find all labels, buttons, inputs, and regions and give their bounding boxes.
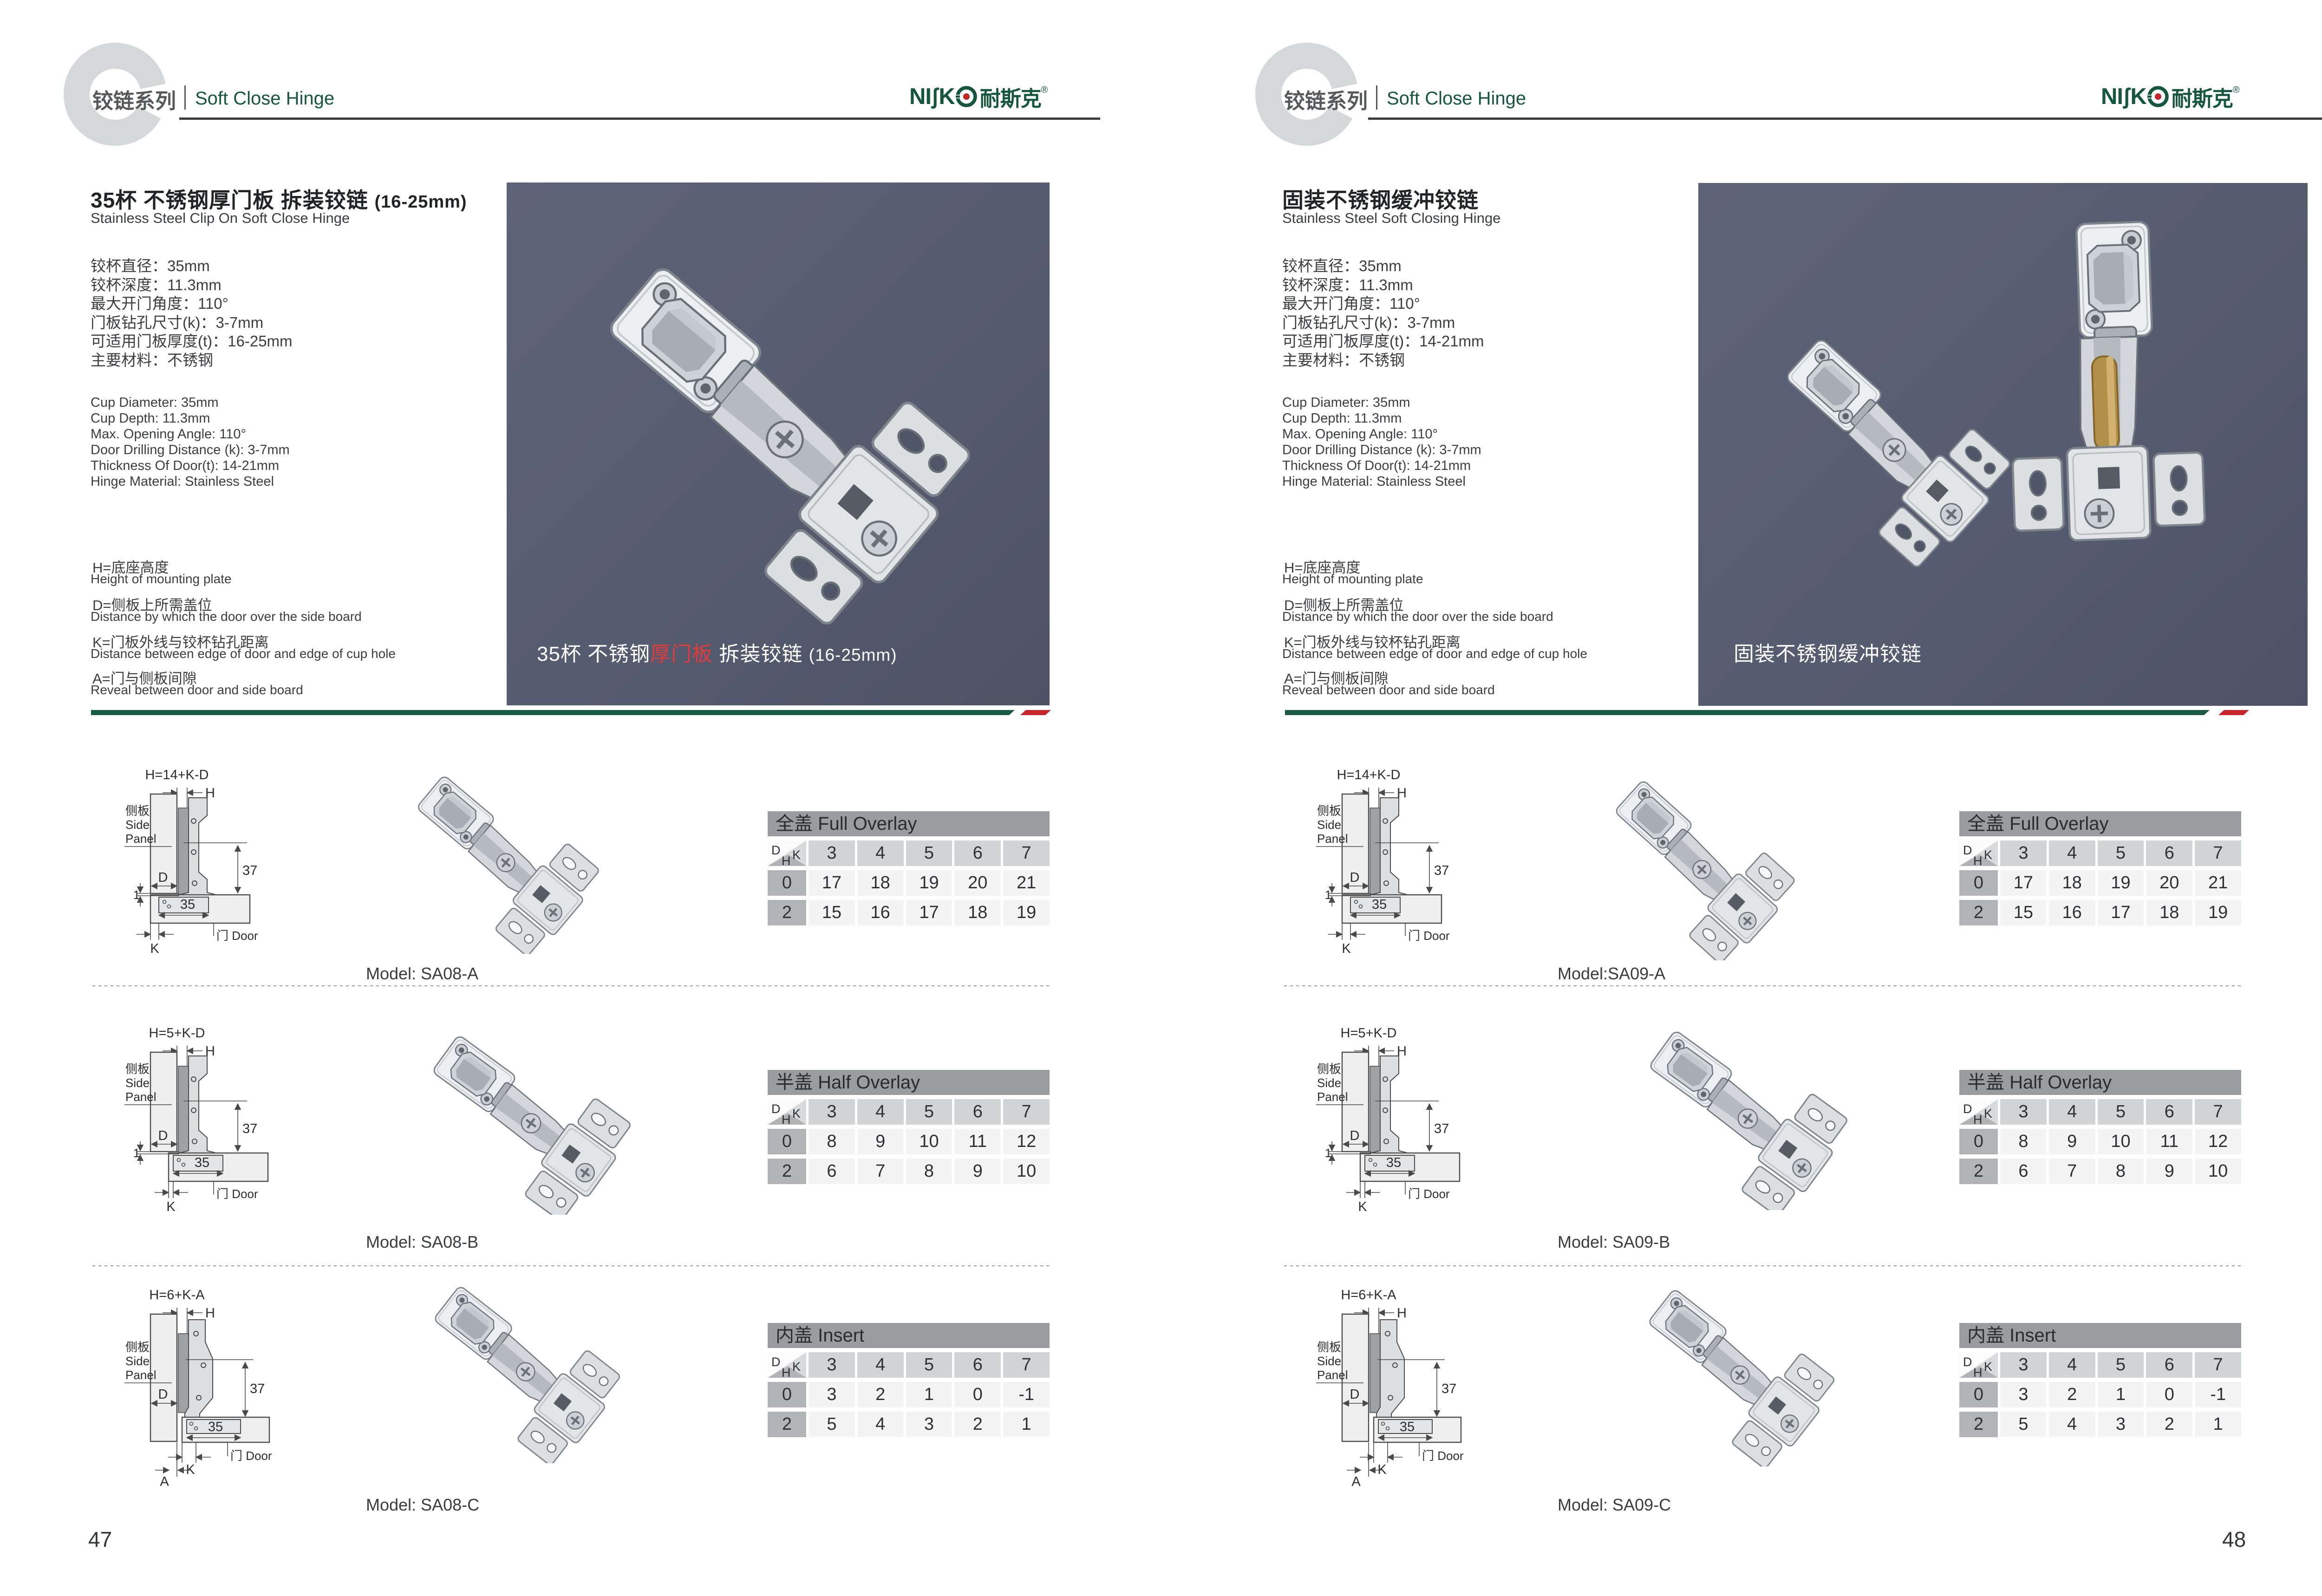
- svg-text:37: 37: [242, 863, 257, 878]
- svg-text:门 Door: 门 Door: [216, 929, 258, 943]
- svg-text:Panel: Panel: [1317, 1090, 1348, 1104]
- svg-text:门 Door: 门 Door: [1408, 1187, 1450, 1201]
- svg-text:H: H: [782, 854, 791, 866]
- svg-text:K: K: [186, 1462, 195, 1477]
- svg-text:35: 35: [1400, 1420, 1415, 1434]
- svg-text:侧板: 侧板: [1317, 1340, 1341, 1354]
- svg-text:H: H: [1973, 1366, 1983, 1378]
- svg-text:37: 37: [1441, 1381, 1456, 1396]
- svg-text:K: K: [1358, 1199, 1367, 1214]
- svg-text:K: K: [792, 848, 801, 862]
- svg-text:35: 35: [1386, 1155, 1401, 1170]
- svg-text:侧板: 侧板: [125, 804, 150, 818]
- svg-text:H=6+K-A: H=6+K-A: [149, 1288, 205, 1303]
- svg-text:门 Door: 门 Door: [1422, 1449, 1464, 1463]
- svg-text:H=14+K-D: H=14+K-D: [1337, 768, 1400, 782]
- svg-text:Side: Side: [1317, 1076, 1341, 1090]
- svg-text:D: D: [1350, 1387, 1360, 1402]
- svg-text:H=6+K-A: H=6+K-A: [1341, 1288, 1396, 1303]
- svg-text:侧板: 侧板: [125, 1062, 150, 1076]
- svg-text:K: K: [1984, 1107, 1992, 1120]
- svg-text:H: H: [782, 1366, 791, 1378]
- svg-text:D: D: [771, 1355, 781, 1369]
- svg-text:门 Door: 门 Door: [216, 1187, 258, 1201]
- svg-text:Side: Side: [125, 1354, 150, 1368]
- svg-text:H: H: [1397, 1306, 1407, 1321]
- svg-text:Panel: Panel: [1317, 1368, 1348, 1382]
- svg-text:1: 1: [133, 1146, 140, 1160]
- svg-text:K: K: [1984, 1360, 1992, 1374]
- svg-text:Panel: Panel: [125, 832, 157, 846]
- svg-text:D: D: [771, 1102, 781, 1116]
- svg-text:侧板: 侧板: [125, 1340, 150, 1354]
- svg-text:1: 1: [1325, 1146, 1331, 1160]
- svg-text:D: D: [158, 870, 168, 885]
- svg-text:D: D: [1963, 1355, 1972, 1369]
- svg-text:D: D: [1350, 1128, 1360, 1143]
- svg-text:1: 1: [133, 888, 140, 902]
- svg-text:H: H: [1973, 1113, 1983, 1125]
- svg-text:D: D: [1963, 1102, 1972, 1116]
- svg-text:门 Door: 门 Door: [1408, 929, 1450, 943]
- svg-text:K: K: [792, 1107, 801, 1120]
- svg-text:H=14+K-D: H=14+K-D: [145, 768, 209, 782]
- svg-text:K: K: [1342, 941, 1351, 956]
- svg-text:35: 35: [195, 1155, 209, 1170]
- svg-text:H: H: [1973, 854, 1983, 866]
- svg-text:Panel: Panel: [125, 1090, 157, 1104]
- svg-text:Side: Side: [125, 818, 150, 832]
- svg-text:D: D: [158, 1128, 168, 1143]
- svg-text:D: D: [771, 843, 781, 857]
- svg-text:Side: Side: [1317, 1354, 1341, 1368]
- svg-text:K: K: [1377, 1462, 1387, 1477]
- svg-text:H: H: [782, 1113, 791, 1125]
- svg-text:A: A: [1351, 1474, 1361, 1488]
- svg-text:1: 1: [1325, 888, 1331, 902]
- svg-text:K: K: [1984, 848, 1992, 862]
- svg-text:侧板: 侧板: [1317, 804, 1341, 818]
- svg-text:Panel: Panel: [1317, 832, 1348, 846]
- svg-text:K: K: [166, 1199, 176, 1214]
- svg-text:D: D: [1350, 870, 1360, 885]
- svg-text:37: 37: [1434, 863, 1449, 878]
- svg-text:K: K: [150, 941, 159, 956]
- svg-text:D: D: [1963, 843, 1972, 857]
- svg-text:Panel: Panel: [125, 1368, 157, 1382]
- svg-text:H: H: [205, 1306, 215, 1321]
- svg-text:K: K: [792, 1360, 801, 1374]
- svg-text:门 Door: 门 Door: [230, 1449, 272, 1463]
- svg-text:37: 37: [250, 1381, 265, 1396]
- svg-text:侧板: 侧板: [1317, 1062, 1341, 1076]
- svg-text:H=5+K-D: H=5+K-D: [149, 1026, 205, 1041]
- svg-text:A: A: [160, 1474, 169, 1488]
- svg-text:35: 35: [208, 1420, 223, 1434]
- svg-text:35: 35: [1372, 897, 1387, 912]
- svg-text:37: 37: [1434, 1121, 1449, 1136]
- svg-text:Side: Side: [125, 1076, 150, 1090]
- svg-text:35: 35: [180, 897, 195, 912]
- svg-text:Side: Side: [1317, 818, 1341, 832]
- svg-text:37: 37: [242, 1121, 257, 1136]
- svg-text:H=5+K-D: H=5+K-D: [1341, 1026, 1397, 1041]
- svg-text:D: D: [158, 1387, 168, 1402]
